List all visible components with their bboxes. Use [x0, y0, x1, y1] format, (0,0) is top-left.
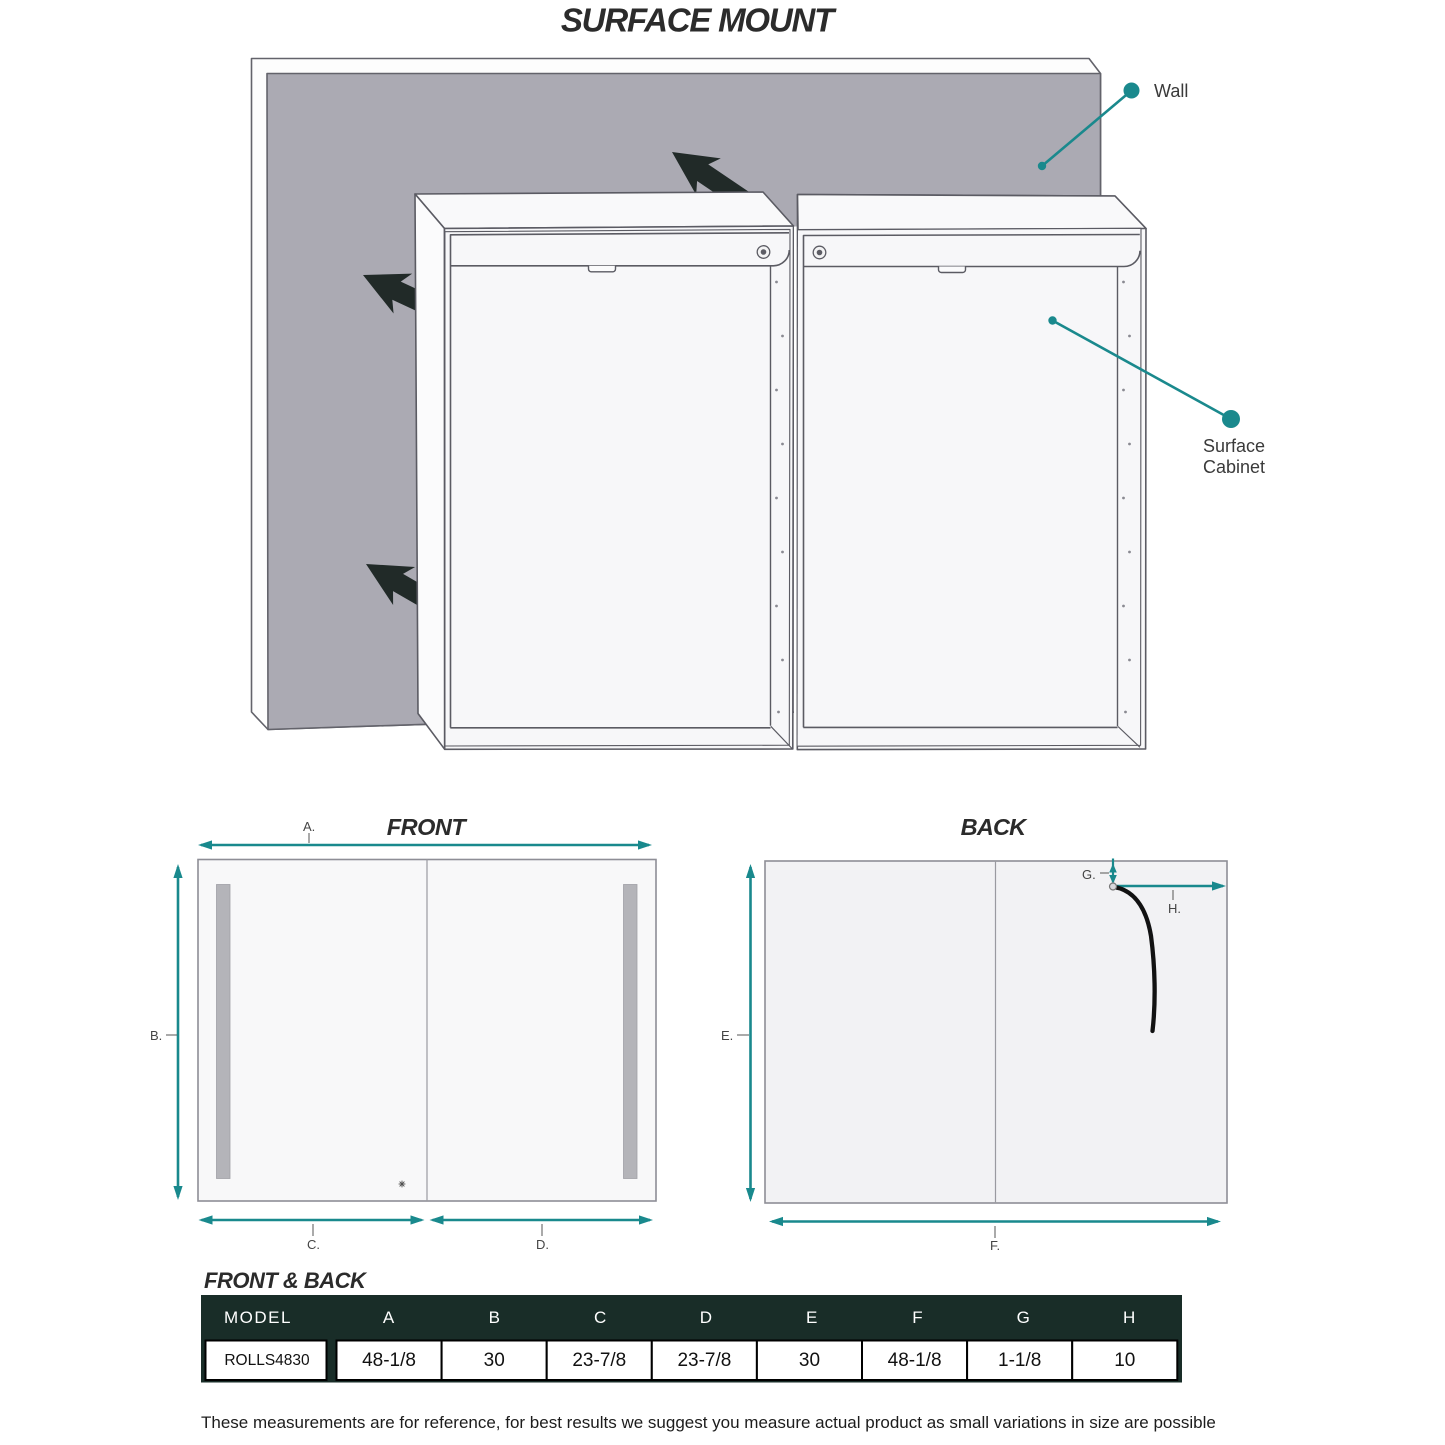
svg-text:23-7/8: 23-7/8 [572, 1350, 626, 1371]
svg-text:Wall: Wall [1154, 81, 1188, 101]
svg-text:F.: F. [990, 1238, 1000, 1253]
svg-text:D.: D. [536, 1237, 549, 1252]
svg-text:23-7/8: 23-7/8 [677, 1350, 731, 1371]
svg-text:Cabinet: Cabinet [1203, 457, 1265, 477]
svg-text:C.: C. [307, 1237, 320, 1252]
svg-text:30: 30 [484, 1350, 505, 1371]
svg-text:BACK: BACK [961, 814, 1029, 840]
svg-text:F: F [912, 1308, 922, 1327]
svg-text:G.: G. [1082, 867, 1096, 882]
svg-text:A: A [383, 1308, 395, 1327]
svg-text:FRONT & BACK: FRONT & BACK [204, 1268, 368, 1293]
svg-text:48-1/8: 48-1/8 [888, 1350, 942, 1371]
svg-text:ROLLS4830: ROLLS4830 [224, 1352, 310, 1369]
svg-text:30: 30 [799, 1350, 820, 1371]
svg-text:E: E [806, 1308, 817, 1327]
svg-text:D: D [700, 1308, 712, 1327]
svg-text:10: 10 [1114, 1350, 1135, 1371]
svg-text:These measurements are for ref: These measurements are for reference, fo… [201, 1413, 1216, 1432]
svg-text:Surface: Surface [1203, 436, 1265, 456]
svg-text:H: H [1123, 1308, 1135, 1327]
svg-text:1-1/8: 1-1/8 [998, 1350, 1041, 1371]
svg-text:48-1/8: 48-1/8 [362, 1350, 416, 1371]
svg-text:MODEL: MODEL [224, 1308, 292, 1327]
svg-text:FRONT: FRONT [387, 814, 468, 840]
svg-text:G: G [1017, 1308, 1030, 1327]
svg-text:B: B [489, 1308, 500, 1327]
svg-text:B.: B. [150, 1028, 162, 1043]
svg-text:SURFACE MOUNT: SURFACE MOUNT [561, 2, 837, 39]
svg-text:C: C [594, 1308, 606, 1327]
svg-text:H.: H. [1168, 901, 1181, 916]
svg-text:E.: E. [721, 1028, 733, 1043]
svg-text:A.: A. [303, 819, 315, 834]
